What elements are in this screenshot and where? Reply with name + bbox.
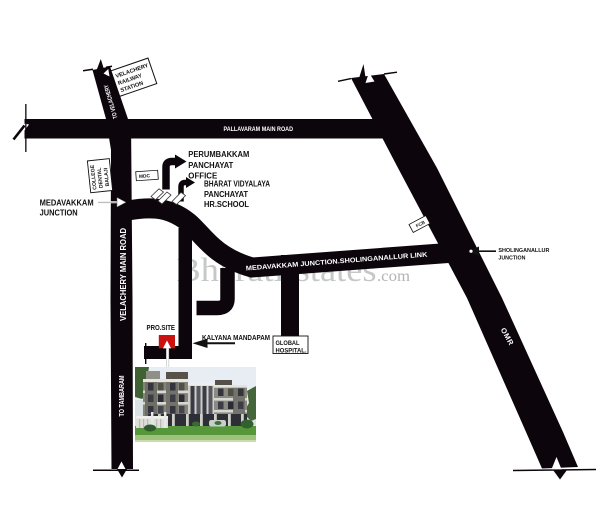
svg-text:VELACHERY MAIN ROAD: VELACHERY MAIN ROAD bbox=[118, 228, 128, 321]
svg-text:PRO.SITE: PRO.SITE bbox=[147, 323, 176, 332]
svg-text:JUNCTION: JUNCTION bbox=[40, 209, 78, 218]
svg-text:PANCHAYAT: PANCHAYAT bbox=[188, 161, 233, 170]
svg-text:MDC: MDC bbox=[139, 173, 151, 180]
svg-text:GLOBAL: GLOBAL bbox=[276, 340, 300, 347]
svg-text:KALYANA MANDAPAM: KALYANA MANDAPAM bbox=[202, 333, 270, 342]
svg-text:.com: .com bbox=[377, 268, 410, 285]
svg-text:PALLAVARAM MAIN ROAD: PALLAVARAM MAIN ROAD bbox=[224, 126, 294, 133]
svg-text:HR.SCHOOL: HR.SCHOOL bbox=[204, 200, 249, 209]
svg-text:BHARAT VIDYALAYA: BHARAT VIDYALAYA bbox=[204, 179, 270, 188]
svg-text:TO TAMBARAM: TO TAMBARAM bbox=[117, 376, 126, 417]
svg-text:PERUMBAKKAM: PERUMBAKKAM bbox=[188, 150, 249, 159]
svg-text:SHOLINGANALLUR: SHOLINGANALLUR bbox=[498, 248, 549, 254]
svg-text:HOSPITAL.: HOSPITAL. bbox=[276, 347, 307, 354]
svg-text:JUNCTION: JUNCTION bbox=[498, 256, 525, 262]
svg-text:MEDAVAKKAM: MEDAVAKKAM bbox=[40, 199, 94, 208]
svg-text:PANCHAYAT: PANCHAYAT bbox=[204, 190, 248, 199]
